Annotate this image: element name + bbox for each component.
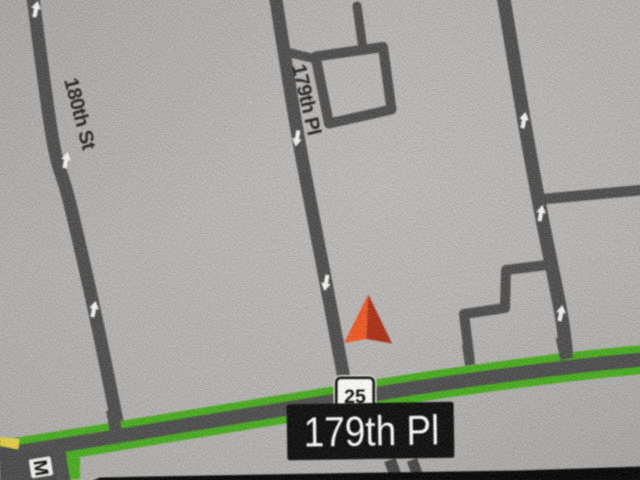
svg-text:179th Pl: 179th Pl	[303, 407, 439, 456]
svg-text:M: M	[28, 458, 51, 477]
